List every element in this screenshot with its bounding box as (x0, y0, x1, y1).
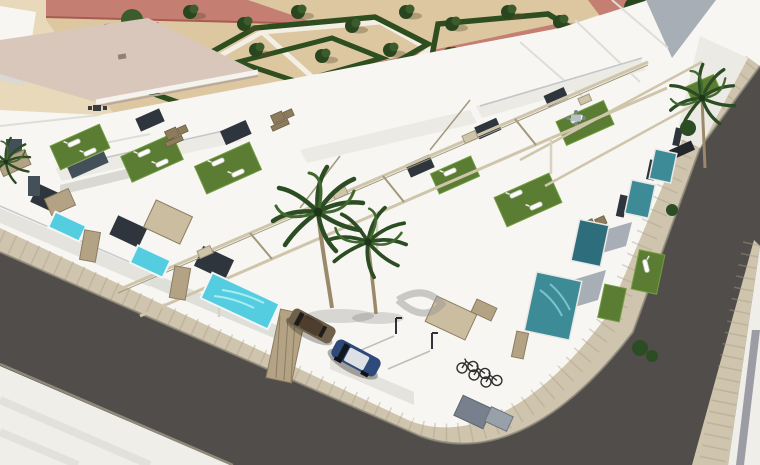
shrub (666, 204, 678, 216)
shrub (632, 340, 648, 356)
window (28, 176, 40, 196)
architectural-render (0, 0, 760, 465)
render-canvas (0, 0, 760, 465)
shrub (646, 350, 658, 362)
palm-ground-shadow (352, 312, 404, 324)
shrub (680, 120, 696, 136)
